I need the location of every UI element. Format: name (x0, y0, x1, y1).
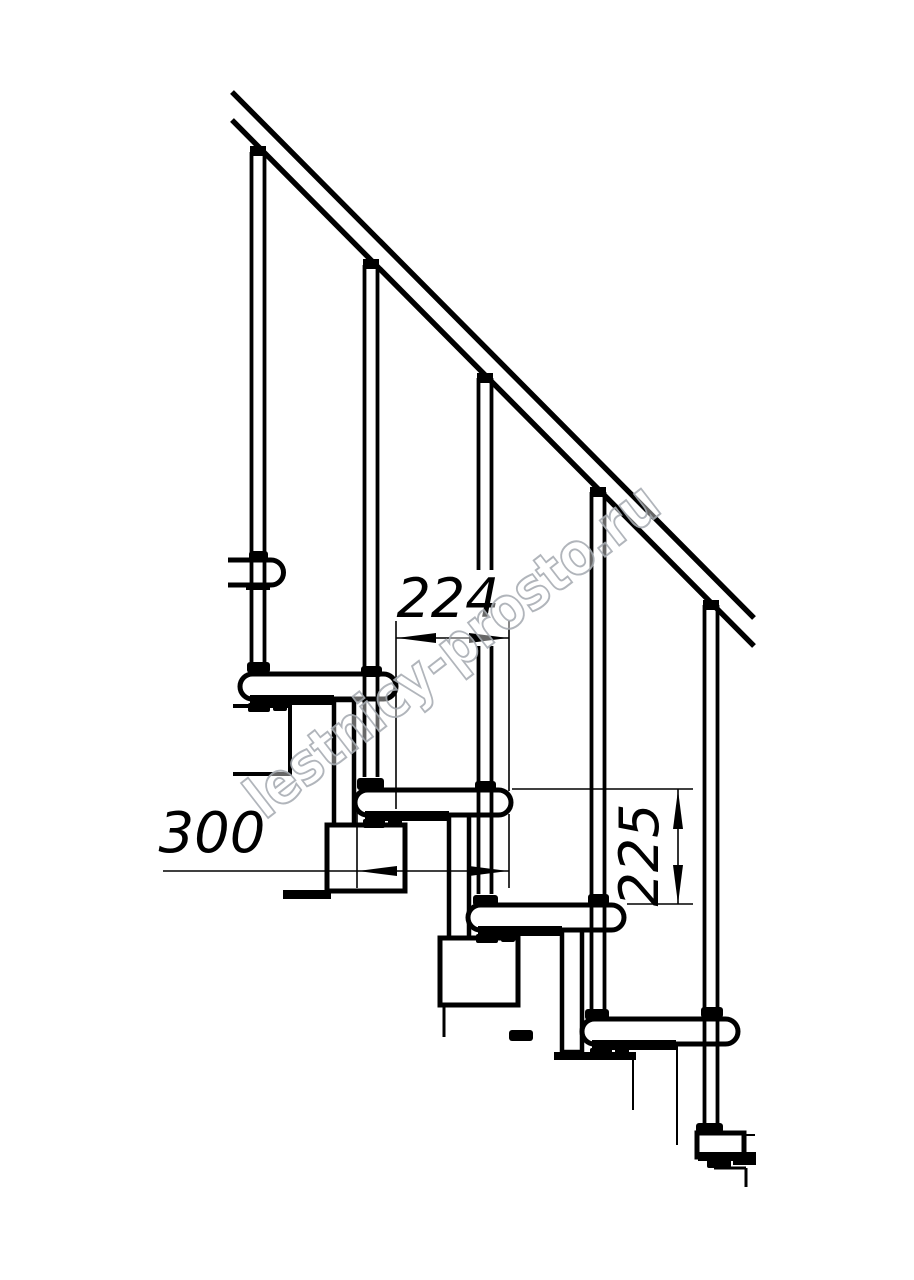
tread-5-mount-a (590, 1048, 612, 1057)
dim-depth-label: 300 (159, 801, 266, 866)
staircase-technical-drawing: 224300225lestnicy-prosto.ru (0, 0, 914, 1280)
tread-2-mount-b (273, 703, 287, 711)
tread-5-mount-b (615, 1048, 629, 1056)
baluster-2-foot (357, 778, 384, 790)
staircase-drawing-page: 224300225lestnicy-prosto.ru (0, 0, 914, 1280)
baluster-3-collar (475, 781, 496, 791)
tread-2-mount-a (248, 703, 270, 712)
module-column-4 (562, 929, 582, 1052)
tread-4-mount-a (476, 934, 498, 943)
dim-rise-label: 225 (608, 803, 671, 906)
baluster-4-collar (588, 894, 609, 905)
module-box-4-foot (509, 1030, 533, 1041)
baluster-1-foot (247, 662, 270, 673)
baluster-5-collar (701, 1007, 723, 1018)
tread-4-mount-b (501, 934, 515, 942)
arrow-rise-bottom (673, 865, 683, 904)
module-box-4 (440, 938, 518, 1005)
baluster-1-collar (249, 551, 268, 561)
baluster-5-foot (696, 1123, 723, 1133)
module-box-3 (327, 825, 405, 891)
tread-6-underside-b (733, 1152, 756, 1165)
tread-3-mount-b (388, 819, 402, 827)
baluster-4-foot (585, 1009, 609, 1020)
module-box-3-flange (283, 890, 331, 899)
arrow-rise-top (673, 790, 683, 829)
arrow-depth-right (469, 866, 508, 876)
tread-1-partial (228, 560, 284, 585)
baluster-3-foot (473, 895, 498, 906)
tread-3-mount-a (363, 819, 385, 828)
tread-6-mount (707, 1159, 731, 1168)
